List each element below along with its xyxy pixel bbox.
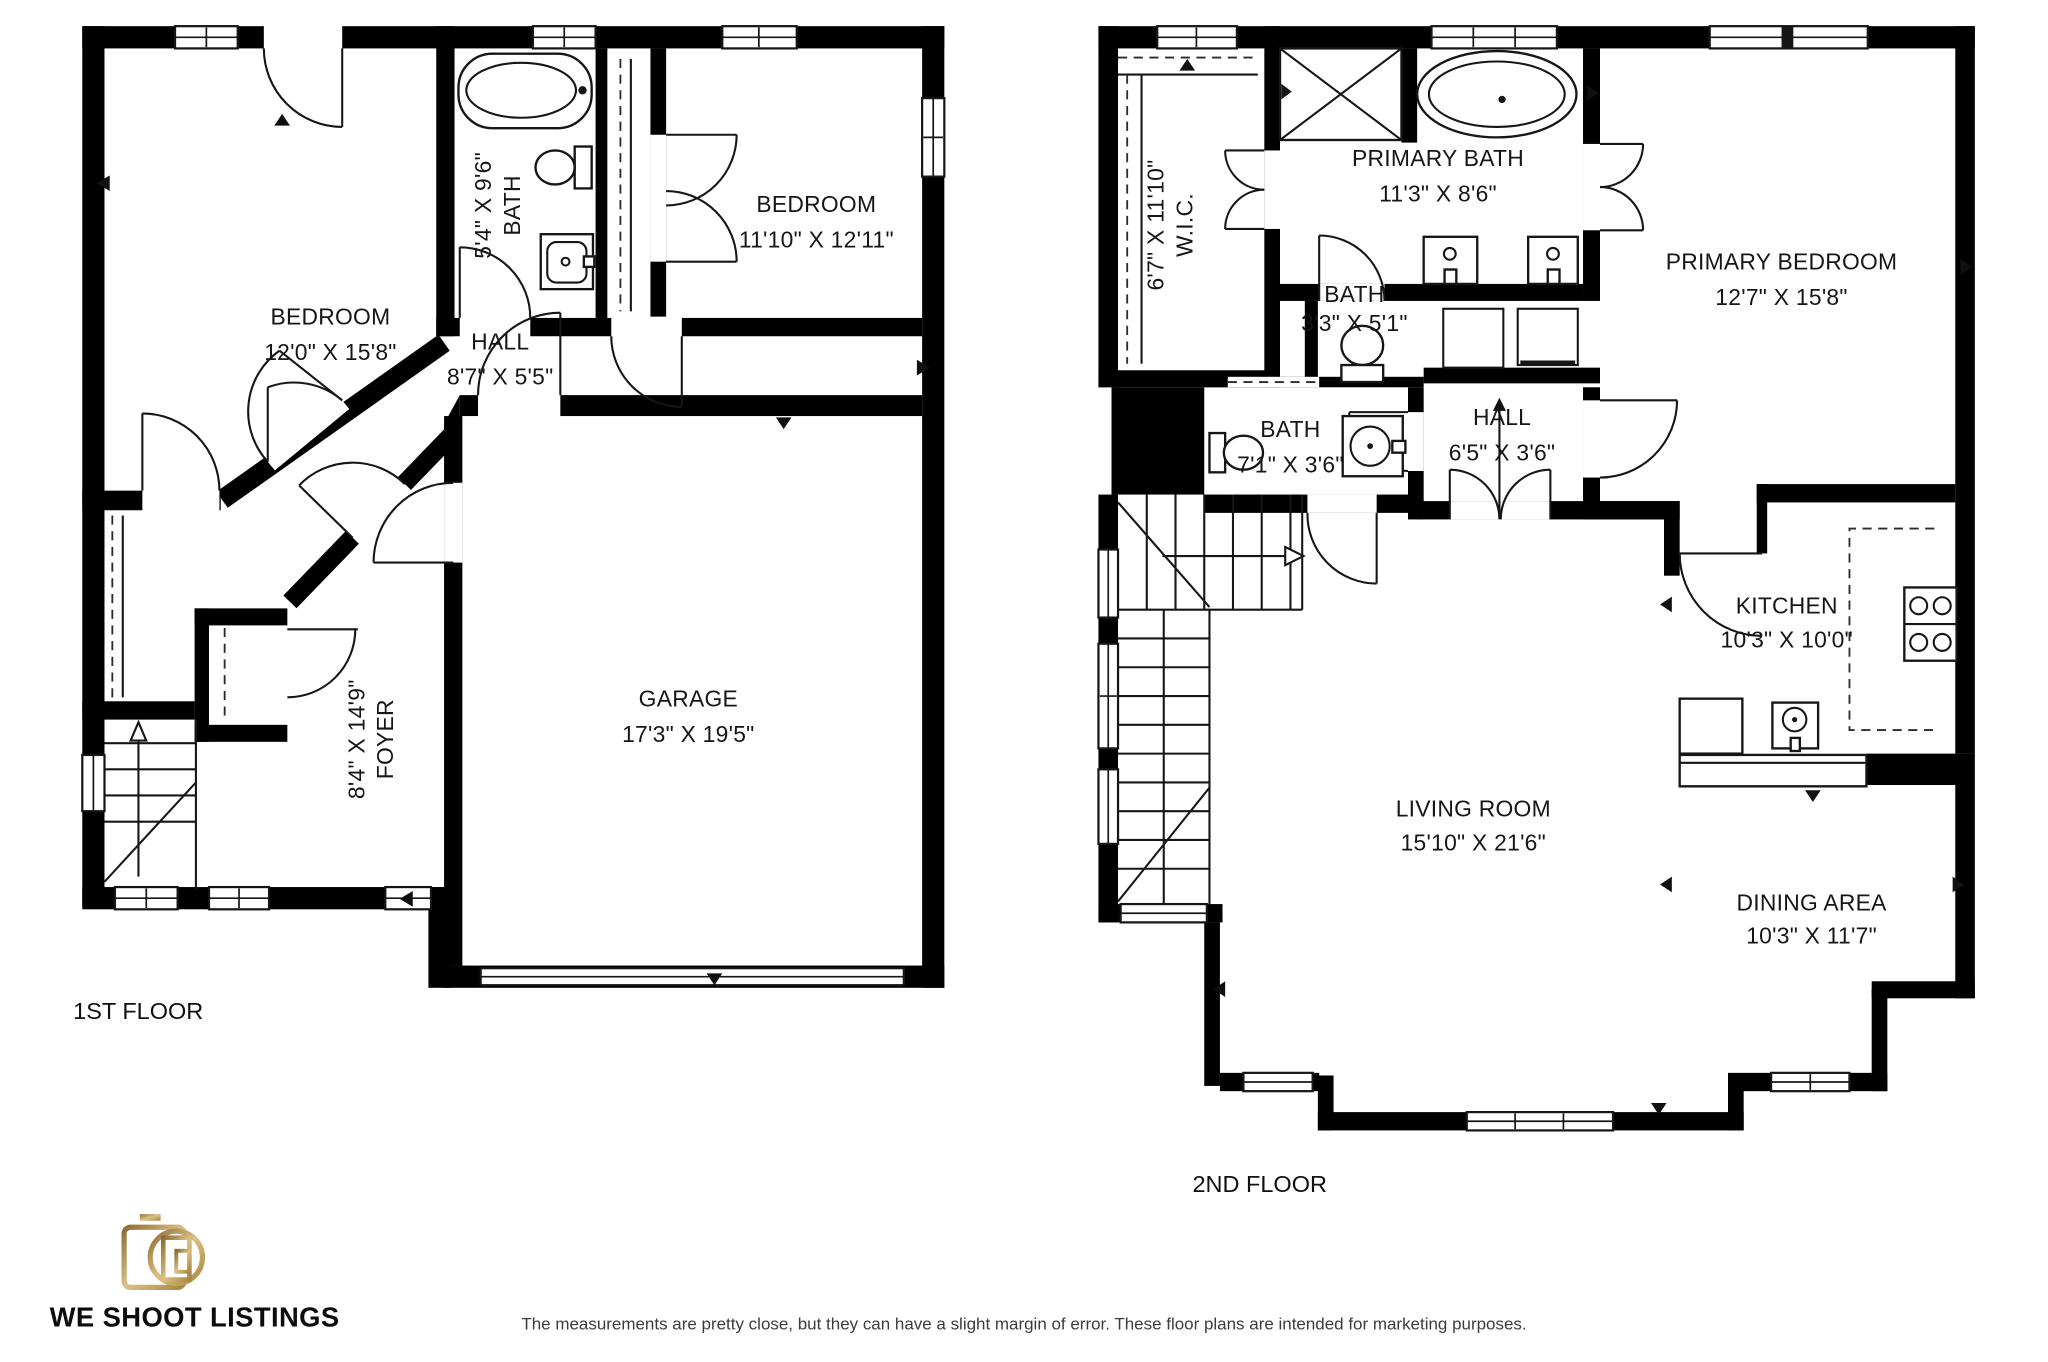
window (1098, 550, 1118, 618)
room-label-kitchen: KITCHEN10'3" X 10'0" (1721, 593, 1853, 653)
room-dims: 7'1" X 3'6" (1237, 451, 1344, 477)
window (1098, 644, 1118, 749)
stairs (1118, 495, 1303, 905)
room-dims: 11'10" X 12'11" (739, 226, 894, 252)
room-dims: 6'7" X 11'10" (1143, 160, 1169, 291)
room-label-wic: W.I.C.6'7" X 11'10" (1143, 160, 1198, 291)
toilet-icon (536, 147, 592, 189)
second-floor-plan: W.I.C.6'7" X 11'10" PRIMARY BATH11'3" X … (1098, 26, 1974, 1197)
room-label-dining-area: DINING AREA10'3" X 11'7" (1737, 890, 1888, 949)
walls (1098, 26, 1974, 1130)
window (1771, 1073, 1849, 1091)
room-label-bedroom-1: BEDROOM12'0" X 15'8" (264, 303, 396, 364)
doors (1225, 144, 1762, 636)
door-swing (1600, 400, 1677, 477)
brand-name: WE SHOOT LISTINGS (50, 1302, 340, 1333)
room-dims: 12'7" X 15'8" (1715, 284, 1847, 310)
room-name: BATH (499, 175, 525, 235)
closet (1443, 309, 1503, 368)
window (175, 26, 238, 48)
room-labels: W.I.C.6'7" X 11'10" PRIMARY BATH11'3" X … (1143, 145, 1898, 948)
closet (1518, 309, 1578, 365)
closet (620, 59, 630, 312)
kitchen-island (1680, 699, 1743, 754)
room-dims: 11'3" X 8'6" (1379, 180, 1497, 206)
bathtub-icon (1417, 51, 1576, 137)
floor-title-2: 2ND FLOOR (1192, 1171, 1326, 1197)
window (1710, 26, 1868, 48)
door-swing (264, 48, 342, 127)
window (1432, 26, 1557, 48)
bifold-closet-doors (666, 135, 737, 262)
room-name: DINING AREA (1737, 890, 1888, 916)
room-dims: 8'4" X 14'9" (343, 679, 369, 799)
floor-title-1: 1ST FLOOR (73, 998, 203, 1024)
room-dims: 10'3" X 10'0" (1721, 627, 1853, 653)
room-name: BATH (1324, 281, 1384, 307)
room-name: BATH (1260, 416, 1320, 442)
double-door-swing (1225, 150, 1264, 229)
disclaimer-text: The measurements are pretty close, but t… (521, 1314, 1526, 1333)
room-name: PRIMARY BEDROOM (1666, 249, 1898, 275)
brand-block: WE SHOOT LISTINGS (50, 1214, 340, 1333)
room-name: BEDROOM (271, 303, 391, 329)
window (1467, 1112, 1613, 1130)
room-name: HALL (1473, 404, 1531, 430)
floor-plan-canvas: BEDROOM12'0" X 15'8" BATH5'4" X 9'6" BED… (0, 0, 2048, 1362)
room-dims: 8'7" X 5'5" (447, 364, 554, 390)
room-label-bath: BATH5'4" X 9'6" (470, 152, 525, 259)
room-label-hall-2: HALL6'5" X 3'6" (1449, 404, 1556, 465)
floor-plan-page: BEDROOM12'0" X 15'8" BATH5'4" X 9'6" BED… (0, 0, 2048, 1362)
window (1098, 769, 1118, 844)
room-dims: 6'5" X 3'6" (1449, 440, 1556, 466)
sink-icon (1343, 416, 1406, 476)
room-dims: 5'4" X 9'6" (470, 152, 496, 259)
room-label-primary-bath: PRIMARY BATH11'3" X 8'6" (1352, 145, 1524, 206)
camera-markers (1179, 59, 1972, 1115)
closet (112, 515, 122, 697)
room-label-garage: GARAGE17'3" X 19'5" (622, 685, 754, 746)
window (209, 887, 269, 909)
room-dims: 12'0" X 15'8" (264, 339, 396, 365)
window (1243, 1073, 1312, 1091)
counter-bar (1680, 755, 1867, 786)
door-swing (142, 413, 219, 490)
bathtub-icon (458, 54, 591, 129)
sink-icon (1528, 237, 1578, 284)
window (1157, 26, 1237, 48)
kitchen-sink-icon (1772, 703, 1818, 751)
room-name: FOYER (372, 699, 398, 779)
room-dims: 3'3" X 5'1" (1301, 310, 1408, 336)
sink-icon (541, 234, 595, 289)
first-floor-plan: BEDROOM12'0" X 15'8" BATH5'4" X 9'6" BED… (73, 25, 944, 1024)
double-door-swing (1600, 144, 1643, 230)
stove-icon (1904, 587, 1956, 660)
stairs (104, 720, 195, 890)
stairs-direction-arrow (1285, 547, 1303, 565)
room-label-bedroom-2: BEDROOM11'10" X 12'11" (739, 191, 894, 252)
room-name: BEDROOM (756, 191, 876, 217)
room-label-foyer: FOYER8'4" X 14'9" (343, 679, 398, 799)
room-dims: 10'3" X 11'7" (1746, 922, 1877, 948)
camera-icon (124, 1214, 202, 1287)
room-name: W.I.C. (1172, 193, 1198, 257)
room-name: GARAGE (639, 685, 738, 711)
room-name: PRIMARY BATH (1352, 145, 1524, 171)
room-dims: 15'10" X 21'6" (1401, 829, 1546, 855)
room-name: HALL (471, 328, 529, 354)
sink-icon (1424, 237, 1478, 284)
window (82, 755, 104, 811)
garage-door (481, 968, 904, 985)
window (922, 98, 944, 177)
window (722, 26, 796, 48)
room-label-living-room: LIVING ROOM15'10" X 21'6" (1396, 795, 1551, 855)
window (533, 26, 596, 48)
window (1121, 904, 1207, 922)
room-dims: 17'3" X 19'5" (622, 721, 754, 747)
shower-icon (1280, 48, 1401, 140)
room-name: KITCHEN (1736, 593, 1838, 619)
stairs-up-arrow (131, 722, 147, 740)
window (115, 887, 178, 909)
door-swing (1307, 513, 1376, 584)
room-name: LIVING ROOM (1396, 795, 1551, 821)
room-label-primary-bedroom: PRIMARY BEDROOM12'7" X 15'8" (1666, 249, 1898, 310)
